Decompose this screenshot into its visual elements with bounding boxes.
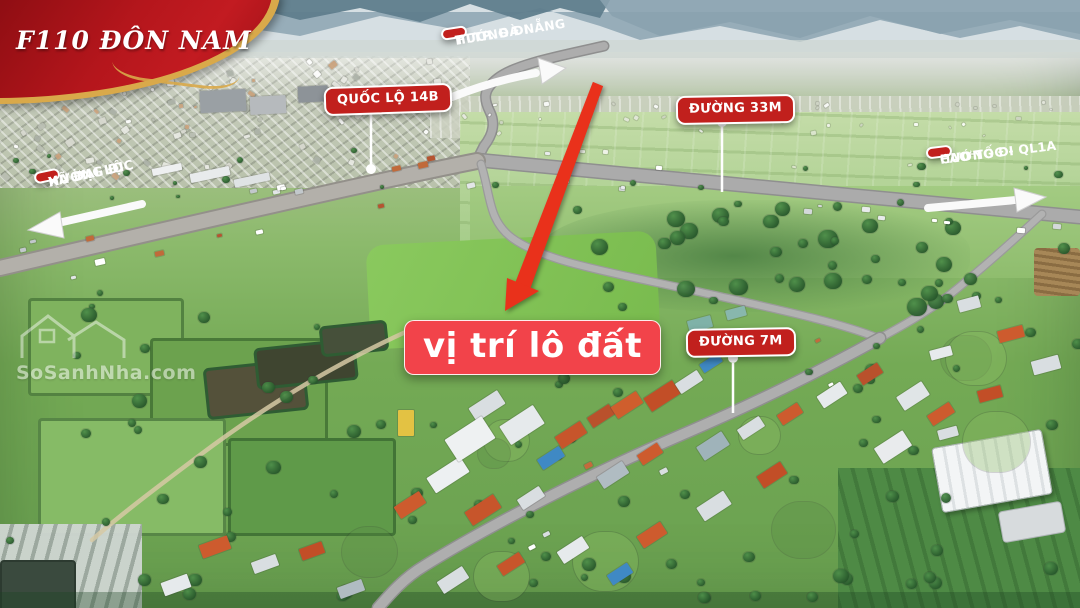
pointer-pin-33m	[717, 117, 727, 192]
road-label-33m: ĐƯỜNG 33M	[676, 94, 795, 125]
plot-location-label: vị trí lô đất	[404, 320, 661, 375]
direction-arrow-dailoc	[28, 204, 142, 238]
direction-arrow-danang	[452, 58, 566, 97]
annotation-layer	[0, 0, 1080, 608]
pointer-pin-7m	[728, 353, 738, 413]
road-label-ql14b: QUỐC LỘ 14B	[324, 83, 453, 116]
road-label-7m: ĐƯỜNG 7M	[686, 327, 796, 358]
aerial-real-estate-photo: SoSanhNha.com	[0, 0, 1080, 608]
direction-label-caotoc: HƯỚNG ĐI CAO TỐC - QL1A	[925, 144, 952, 159]
project-title: F110 ĐÔN NAM	[16, 26, 252, 55]
pointer-pin-ql14b	[366, 112, 376, 174]
location-arrow-icon	[505, 82, 603, 311]
direction-label-danang: HƯỚNG ĐI TTTP. ĐÀ NẴNG	[440, 25, 468, 41]
direction-arrow-caotoc	[928, 188, 1046, 212]
